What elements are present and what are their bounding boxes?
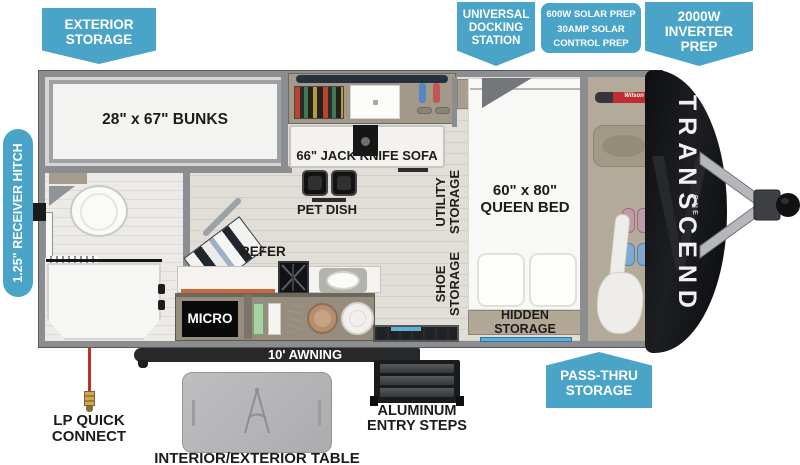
cabinet-divider bbox=[244, 295, 252, 339]
awning-label: 10' AWNING bbox=[240, 348, 370, 362]
utility-storage-label: UTILITY STORAGE bbox=[434, 162, 470, 242]
rear-receiver bbox=[32, 203, 46, 221]
step-tread bbox=[380, 388, 454, 397]
pet-dish-bowl bbox=[302, 170, 328, 196]
table-brand-mark bbox=[192, 400, 195, 426]
sofa-foot bbox=[398, 168, 428, 172]
sofa-label: 66" JACK KNIFE SOFA bbox=[289, 149, 445, 163]
callout-solar-prep: 600W SOLAR PREP 30AMP SOLAR CONTROL PREP bbox=[541, 3, 641, 53]
game-controller-red bbox=[433, 83, 440, 103]
refer-label: REFER bbox=[240, 245, 312, 259]
lp-hose bbox=[88, 348, 91, 393]
laptop-logo bbox=[373, 100, 378, 105]
plate-inner bbox=[349, 310, 366, 327]
tv bbox=[296, 75, 448, 83]
table-brand-mark bbox=[318, 400, 321, 426]
pet-dish-bowl bbox=[331, 170, 357, 196]
lp-connector bbox=[84, 391, 95, 406]
table-label: INTERIOR/EXTERIOR TABLE bbox=[150, 451, 364, 465]
callout-pass-thru-storage: PASS-THRU STORAGE bbox=[546, 352, 652, 408]
pet-dish-inner bbox=[308, 176, 322, 190]
shoe-storage-label: SHOE STORAGE bbox=[434, 244, 470, 324]
console-knob bbox=[361, 137, 370, 146]
bowl-inner bbox=[314, 310, 331, 327]
plate bbox=[341, 302, 374, 335]
gear-shadow bbox=[602, 135, 646, 157]
step-tread bbox=[380, 376, 454, 385]
bathroom-shelf bbox=[49, 173, 87, 184]
bunk-room-wall-right bbox=[281, 77, 288, 173]
cooktop-grate bbox=[280, 263, 307, 292]
lp-quick-connect-label: LP QUICK CONNECT bbox=[27, 413, 151, 445]
shower-faucet-knob bbox=[158, 284, 165, 294]
bathroom-window bbox=[45, 212, 53, 258]
callout-universal-docking-station: UNIVERSAL DOCKING STATION bbox=[457, 2, 535, 66]
pillow bbox=[529, 253, 577, 307]
counter-towel bbox=[181, 289, 275, 293]
pet-dish-inner bbox=[337, 176, 351, 190]
shower-curtain-rod bbox=[46, 259, 162, 262]
remote bbox=[435, 107, 450, 114]
step-tread bbox=[380, 364, 454, 373]
laptop bbox=[350, 85, 400, 119]
shower-faucet-knob bbox=[158, 300, 165, 310]
microwave: MICRO bbox=[182, 301, 238, 337]
entry-window bbox=[391, 327, 421, 331]
table-compass-logo bbox=[238, 385, 276, 437]
mixing-bowl bbox=[307, 303, 338, 334]
bedroom-window bbox=[480, 337, 572, 342]
pet-dish-label: PET DISH bbox=[277, 203, 377, 217]
cutting-board-green bbox=[253, 303, 264, 335]
entry-steps-label: ALUMINUM ENTRY STEPS bbox=[346, 404, 488, 435]
game-controller-blue bbox=[419, 83, 426, 103]
bunks-label: 28" x 67" BUNKS bbox=[75, 112, 255, 128]
hitch-a-frame bbox=[692, 136, 800, 274]
utensils bbox=[287, 305, 303, 333]
hidden-storage-label: HIDDEN STORAGE bbox=[469, 309, 581, 336]
floorplan-image: 28" x 67" BUNKS 66" JACK KNIFE SOFA PET … bbox=[0, 0, 800, 465]
sink bbox=[326, 271, 360, 290]
pillow bbox=[477, 253, 525, 307]
hidden-storage: HIDDEN STORAGE bbox=[468, 310, 582, 335]
micro-label: MICRO bbox=[188, 312, 233, 326]
callout-exterior-storage: EXTERIOR STORAGE bbox=[42, 8, 156, 64]
shower-tub bbox=[47, 263, 161, 340]
callout-receiver-hitch-text: 1.25" RECEIVER HITCH bbox=[9, 128, 27, 298]
toilet-seat bbox=[80, 193, 118, 231]
remote bbox=[417, 107, 432, 114]
media-shelf bbox=[294, 86, 344, 119]
toilet bbox=[70, 185, 128, 237]
entry-steps bbox=[374, 360, 460, 403]
queen-bed-label-line2: QUEEN BED bbox=[468, 200, 582, 216]
cutting-board-white bbox=[268, 303, 281, 335]
queen-bed-label-line1: 60" x 80" bbox=[468, 183, 582, 199]
bedroom-wall-right bbox=[580, 77, 588, 341]
cooktop bbox=[278, 261, 309, 294]
callout-inverter-prep: 2000W INVERTER PREP bbox=[645, 2, 753, 66]
awning-knob bbox=[138, 360, 148, 368]
racket-handle bbox=[595, 92, 613, 103]
bunk-room-wall-bottom bbox=[45, 166, 292, 173]
